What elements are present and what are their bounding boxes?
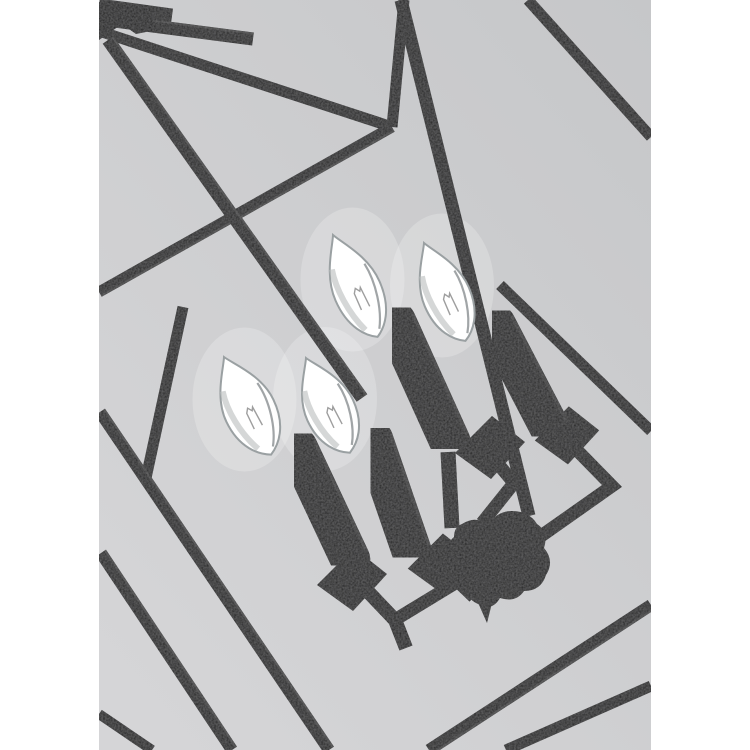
chandelier-product-photo — [0, 0, 750, 750]
studio-backdrop — [99, 0, 651, 750]
arm-back-left-drop — [448, 452, 452, 528]
product-photo-page — [0, 0, 750, 750]
